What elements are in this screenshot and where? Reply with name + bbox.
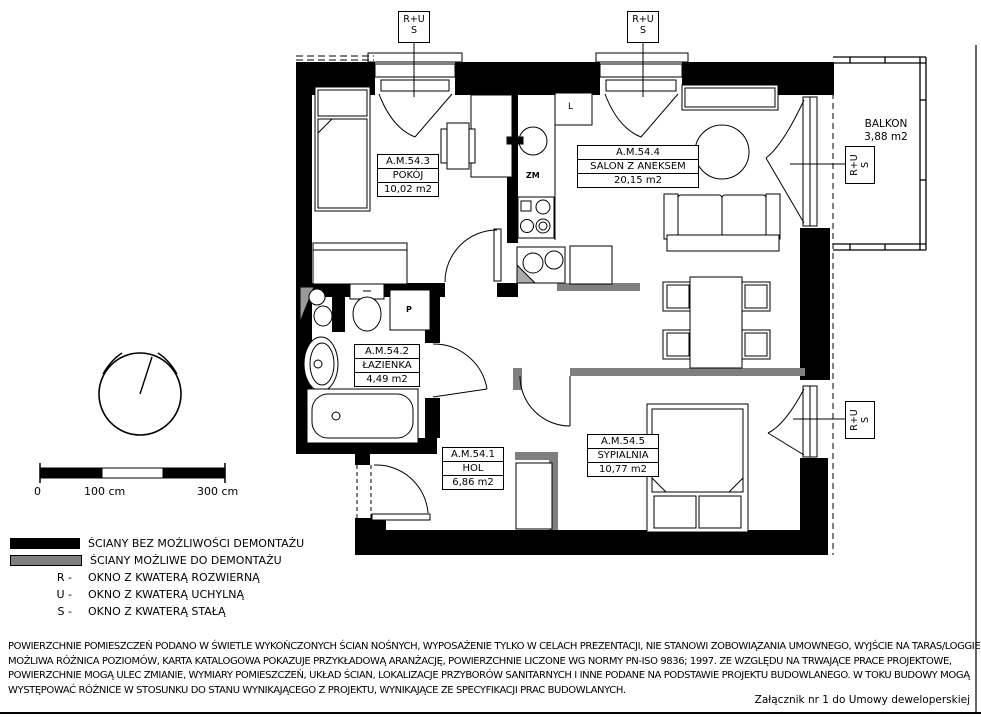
marker-rotated: R+U S — [849, 145, 871, 185]
room-label-sypialnia: A.M.54.5 SYPIALNIA 10,77 m2 — [587, 434, 659, 477]
scale-tick-0: 0 — [34, 486, 41, 498]
room-area: 6,86 m2 — [443, 475, 503, 489]
compass — [99, 353, 181, 435]
legend-label: OKNO Z KWATERĄ UCHYLNĄ — [88, 589, 244, 601]
legend-label: ŚCIANY BEZ MOŻLIWOŚCI DEMONTAŻU — [88, 538, 304, 550]
marker-line1: R+U — [849, 400, 860, 440]
legend: ŚCIANY BEZ MOŻLIWOŚCI DEMONTAŻU ŚCIANY M… — [10, 535, 304, 620]
legend-label: OKNO Z KWATERĄ STAŁĄ — [88, 606, 225, 618]
demolishable-wall-swatch — [10, 555, 82, 566]
scale-bar-graphic — [40, 463, 225, 483]
window-marker-sypialnia: R+U S — [845, 401, 875, 439]
kitchen-fixtures — [507, 93, 612, 284]
room-label-hol: A.M.54.1 HOL 6,86 m2 — [442, 447, 504, 490]
room-name: POKÓJ — [378, 168, 438, 182]
disclaimer-line: POWIERZCHNIE MOGĄ ULEC ZMIANIE, WYMIARY … — [8, 669, 974, 684]
room-area: 20,15 m2 — [578, 173, 698, 187]
legend-row-demolishable-wall: ŚCIANY MOŻLIWE DO DEMONTAŻU — [10, 552, 304, 569]
scale-tick-100: 100 cm — [84, 486, 125, 498]
room-name: ŁAZIENKA — [355, 358, 419, 372]
legend-row-window-u: U - OKNO Z KWATERĄ UCHYLNĄ — [10, 586, 304, 603]
marker-line1: R+U — [849, 145, 860, 185]
disclaimer-line: MOŻLIWA RÓŻNICA POZIOMÓW, KARTA KATALOGO… — [8, 655, 974, 670]
room-label-salon: A.M.54.4 SALON Z ANEKSEM 20,15 m2 — [577, 145, 699, 188]
washer-label: P — [406, 305, 412, 314]
legend-label: ŚCIANY MOŻLIWE DO DEMONTAŻU — [90, 555, 282, 567]
attachment-note: Załącznik nr 1 do Umowy deweloperskiej — [690, 694, 970, 706]
room-id: A.M.54.3 — [378, 155, 438, 168]
room-name: SALON Z ANEKSEM — [578, 159, 698, 173]
room-area: 10,02 m2 — [378, 182, 438, 196]
legend-label: OKNO Z KWATERĄ ROZWIERNĄ — [88, 572, 260, 584]
floor-plan-sheet: A.M.54.3 POKÓJ 10,02 m2 A.M.54.4 SALON Z… — [0, 0, 981, 722]
legend-key: S - — [10, 606, 80, 618]
room-id: A.M.54.1 — [443, 448, 503, 461]
balcony-label: BALKON 3,88 m2 — [850, 118, 922, 144]
room-label-pokoj: A.M.54.3 POKÓJ 10,02 m2 — [377, 154, 439, 197]
solid-wall-swatch — [10, 538, 80, 549]
furniture-salon — [663, 85, 780, 368]
room-name: SYPIALNIA — [588, 448, 658, 462]
marker-line2: S — [628, 25, 658, 36]
balcony-name: BALKON — [850, 118, 922, 131]
legend-key: R - — [10, 572, 80, 584]
dishwasher-label: ZM — [526, 171, 540, 180]
window-marker-salon: R+U S — [627, 11, 659, 43]
marker-line2: S — [860, 400, 871, 440]
room-area: 10,77 m2 — [588, 462, 658, 476]
marker-line1: R+U — [628, 14, 658, 25]
marker-line2: S — [860, 145, 871, 185]
balcony-area: 3,88 m2 — [850, 131, 922, 144]
legend-row-window-r: R - OKNO Z KWATERĄ ROZWIERNĄ — [10, 569, 304, 586]
room-area: 4,49 m2 — [355, 372, 419, 386]
window-marker-pokoj: R+U S — [398, 11, 430, 43]
window-marker-balcony: R+U S — [845, 146, 875, 184]
room-id: A.M.54.4 — [578, 146, 698, 159]
marker-rotated: R+U S — [849, 400, 871, 440]
scale-tick-300: 300 cm — [197, 486, 238, 498]
disclaimer-line: POWIERZCHNIE POMIESZCZEŃ PODANO W ŚWIETL… — [8, 640, 974, 655]
room-id: A.M.54.2 — [355, 345, 419, 358]
legend-row-solid-wall: ŚCIANY BEZ MOŻLIWOŚCI DEMONTAŻU — [10, 535, 304, 552]
marker-line1: R+U — [399, 14, 429, 25]
fridge-label: L — [568, 103, 573, 112]
disclaimer-text: POWIERZCHNIE POMIESZCZEŃ PODANO W ŚWIETL… — [8, 640, 974, 698]
room-name: HOL — [443, 461, 503, 475]
marker-line2: S — [399, 25, 429, 36]
room-id: A.M.54.5 — [588, 435, 658, 448]
room-label-lazienka: A.M.54.2 ŁAZIENKA 4,49 m2 — [354, 344, 420, 387]
legend-row-window-s: S - OKNO Z KWATERĄ STAŁĄ — [10, 603, 304, 620]
legend-key: U - — [10, 589, 80, 601]
